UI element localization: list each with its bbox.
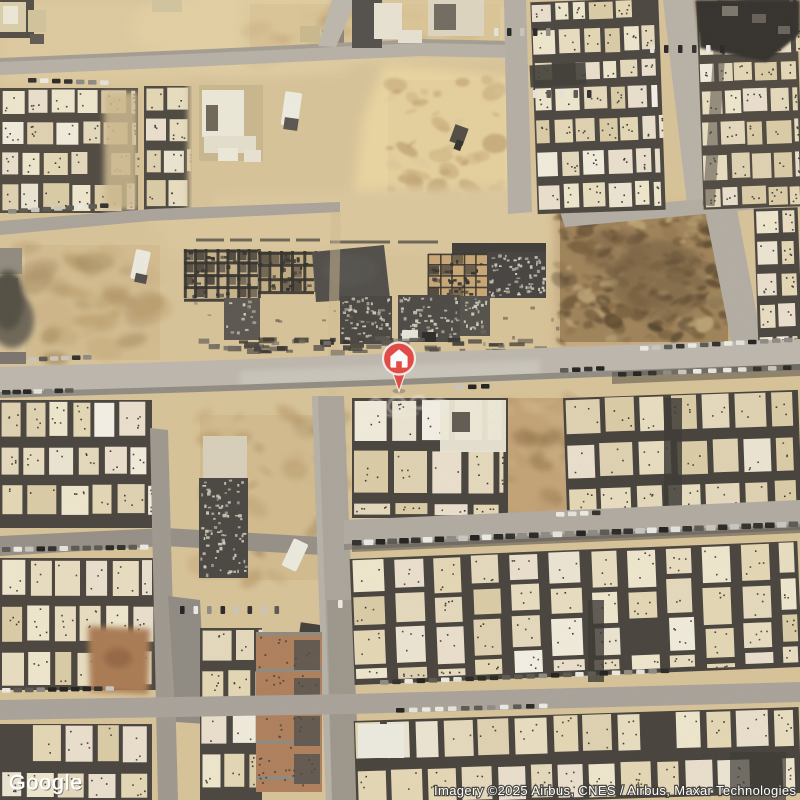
svg-text:Imagery ©2025 Airbus, CNES / A: Imagery ©2025 Airbus, CNES / Airbus, Max… [434,783,797,798]
svg-text:Google: Google [9,771,83,795]
